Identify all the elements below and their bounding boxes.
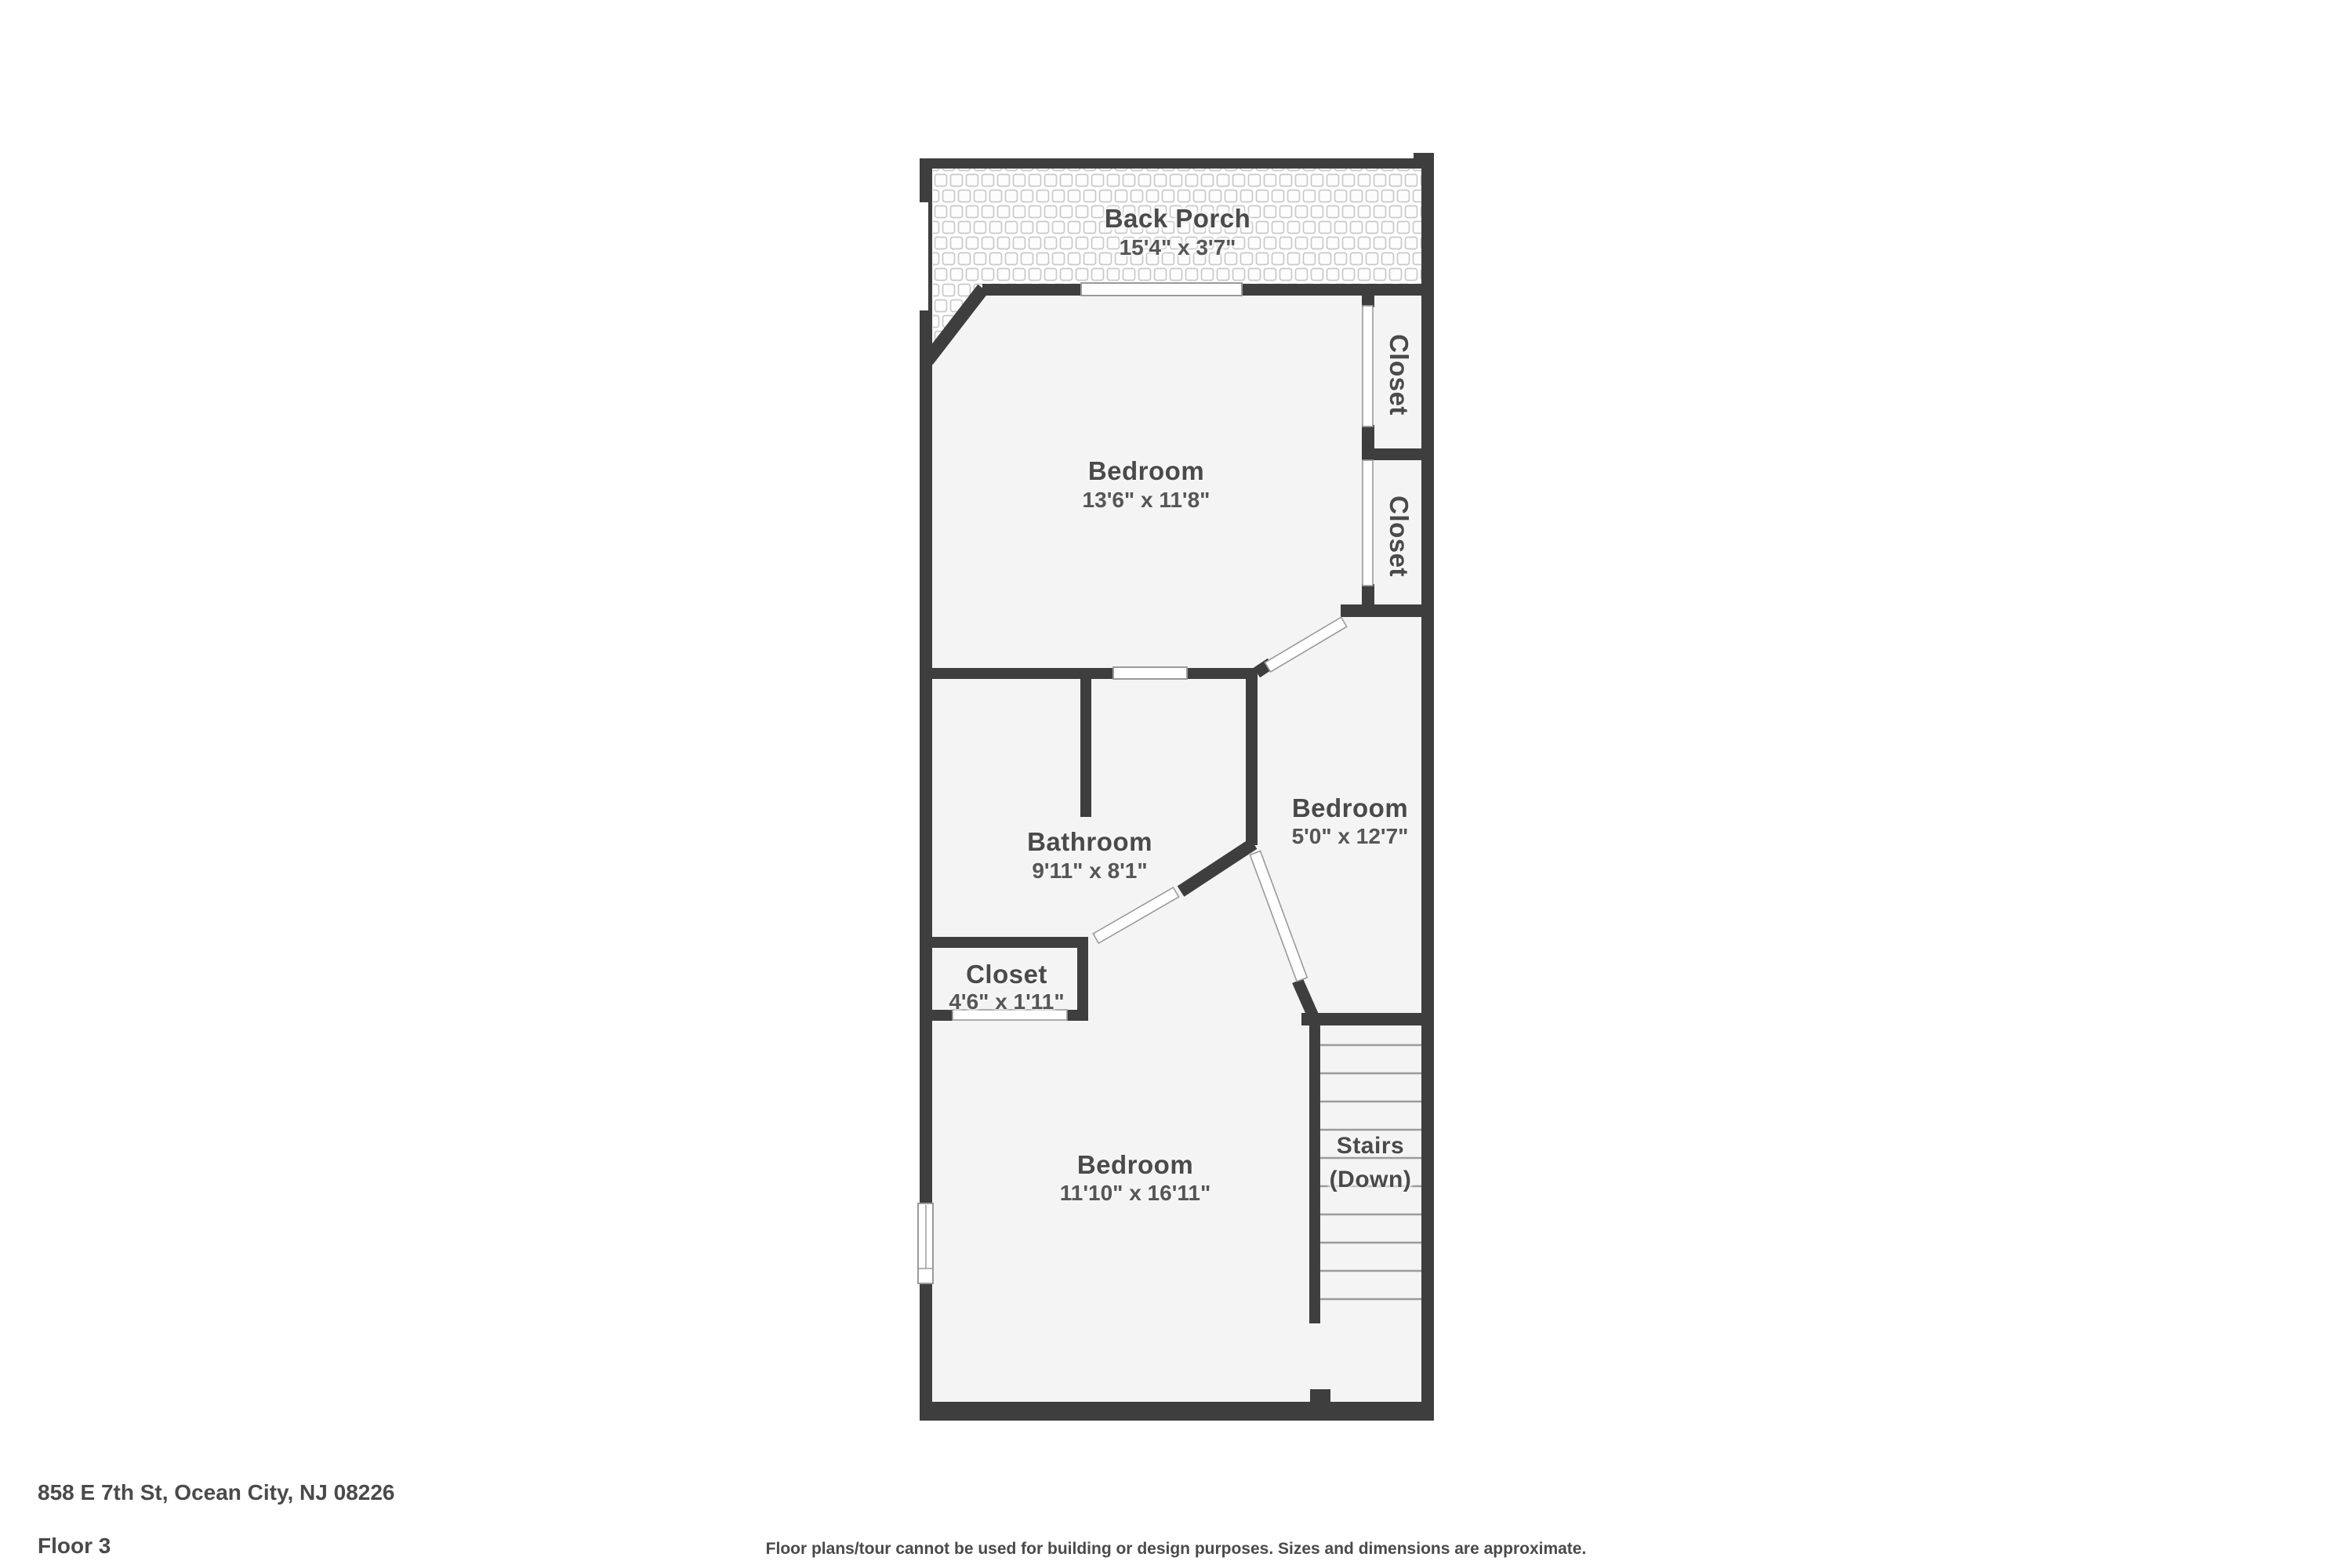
floor-plan-page: Back Porch 15'4" x 3'7" Bedroom 13'6" x … xyxy=(0,0,2352,1568)
plan-interior xyxy=(930,162,1432,1416)
property-address: 858 E 7th St, Ocean City, NJ 08226 xyxy=(38,1480,394,1505)
bedroom-bottom-label: Bedroom xyxy=(1077,1150,1193,1180)
closet-lower-label: Closet xyxy=(1384,495,1414,577)
closet-small-dims: 4'6" x 1'11" xyxy=(949,989,1064,1014)
back-porch-label: Back Porch xyxy=(1105,204,1251,234)
stairs-sublabel: (Down) xyxy=(1330,1167,1412,1193)
disclaimer-text: Floor plans/tour cannot be used for buil… xyxy=(0,1540,2352,1559)
bathroom-opening xyxy=(1113,667,1187,679)
bedroom-middle-label: Bedroom xyxy=(1292,793,1408,823)
closet-upper-label: Closet xyxy=(1384,334,1414,416)
bedroom-bottom-dims: 11'10" x 16'11" xyxy=(1060,1181,1211,1206)
closet-small-label: Closet xyxy=(966,960,1047,989)
bedroom-top-label: Bedroom xyxy=(1088,456,1204,486)
closet-lower-door xyxy=(1363,460,1373,586)
west-window xyxy=(918,1203,933,1283)
porch-window xyxy=(1081,283,1242,296)
stairs-label: Stairs xyxy=(1337,1133,1404,1160)
bedroom-top-dims: 13'6" x 11'8" xyxy=(1083,488,1210,513)
bedroom-middle-dims: 5'0" x 12'7" xyxy=(1292,824,1409,849)
closet-upper-door xyxy=(1363,306,1373,426)
bathroom-label: Bathroom xyxy=(1027,827,1152,857)
back-porch-dims: 15'4" x 3'7" xyxy=(1120,235,1236,260)
bathroom-dims: 9'11" x 8'1" xyxy=(1032,858,1147,884)
